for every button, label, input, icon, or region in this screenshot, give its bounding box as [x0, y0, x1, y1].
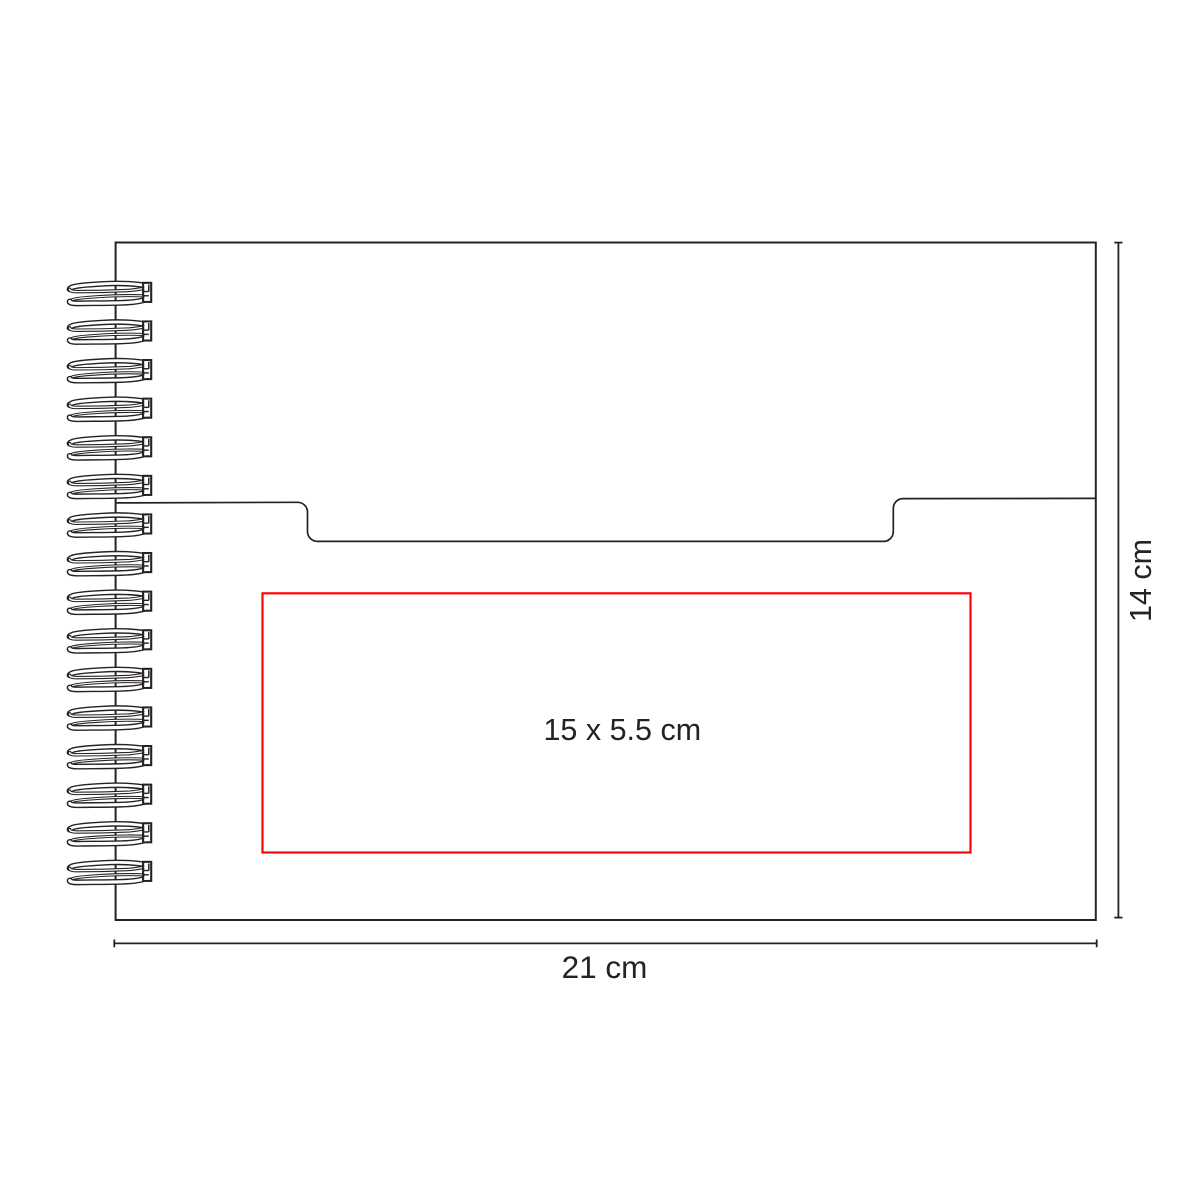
svg-text:14 cm: 14 cm — [1124, 539, 1158, 622]
svg-text:15 x 5.5 cm: 15 x 5.5 cm — [543, 713, 701, 747]
svg-text:21 cm: 21 cm — [562, 949, 648, 985]
